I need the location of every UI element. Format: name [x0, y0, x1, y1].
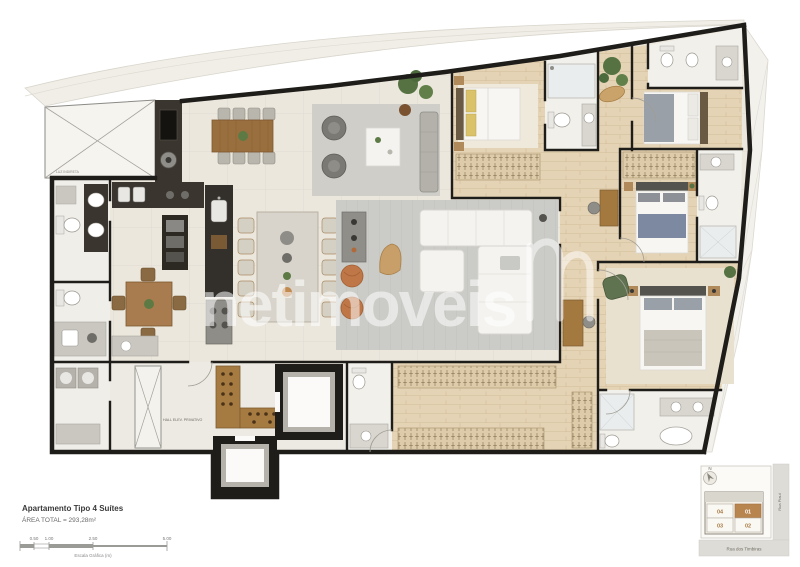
- bed-headboard: [700, 92, 708, 144]
- bed-headboard: [456, 88, 464, 140]
- floor-lamp: [539, 214, 547, 222]
- terrace-label: LUZ INDIRETA: [56, 170, 80, 174]
- side-table: [399, 104, 411, 116]
- floorplan-svg: LUZ INDIRETA: [0, 0, 800, 567]
- plan-title: Apartamento Tipo 4 Suítes: [22, 504, 124, 513]
- double-vanity: [660, 398, 714, 416]
- scale-tick: 5.00: [163, 536, 172, 541]
- gourmet-dining-table: [212, 108, 275, 164]
- scale-tick: 2.50: [89, 536, 98, 541]
- scale-bar: 0.50 1.00 2.50 5.00 Escala Gráfica (m): [20, 536, 172, 558]
- street-bottom-label: Rua dos Timbiras: [726, 547, 762, 552]
- street-right-label: Rua Piauí: [777, 492, 782, 510]
- scale-caption: Escala Gráfica (m): [74, 553, 112, 558]
- wardrobe: [623, 152, 695, 178]
- bed-headboard: [640, 286, 706, 296]
- tv-screen: [160, 110, 177, 140]
- footer: Apartamento Tipo 4 Suítes ÁREA TOTAL = 2…: [20, 504, 172, 558]
- coffee-table: [366, 128, 400, 166]
- bathtub: [660, 427, 692, 445]
- wardrobe: [456, 154, 540, 180]
- suite-2: [644, 92, 708, 144]
- unit-02-label: 02: [745, 524, 751, 530]
- scale-tick: 1.00: [45, 536, 54, 541]
- linen-cabinet: [572, 392, 592, 448]
- unit-04-label: 04: [717, 510, 724, 516]
- terrace-lounge: [312, 104, 440, 196]
- elevator-2: [213, 436, 277, 495]
- north-label: N: [708, 466, 711, 471]
- wardrobe-long-top: [398, 366, 556, 388]
- bed-headboard: [636, 182, 688, 191]
- unit-03-label: 03: [717, 524, 723, 530]
- wardrobe-long-bottom: [398, 428, 544, 450]
- terrace-void: LUZ INDIRETA: [45, 100, 155, 178]
- building-core: [705, 492, 763, 502]
- scale-tick: 0.50: [30, 536, 39, 541]
- watermark-text: netimoveis: [201, 268, 515, 340]
- suite-1: [454, 76, 540, 180]
- unit-01-label: 01: [745, 510, 751, 516]
- keyplan: Rua Piauí Rua dos Timbiras N 04 01 03 02: [699, 464, 789, 556]
- hall-label: HALL ELEV. PRIVATIVO: [163, 418, 203, 422]
- floorplan-screenshot: LUZ INDIRETA: [0, 0, 800, 567]
- plan-area: ÁREA TOTAL = 293,28m²: [22, 515, 97, 524]
- kitchen-side-counter: [112, 336, 158, 356]
- elevator-1: [275, 364, 343, 440]
- corridor-desk-2: [563, 300, 583, 346]
